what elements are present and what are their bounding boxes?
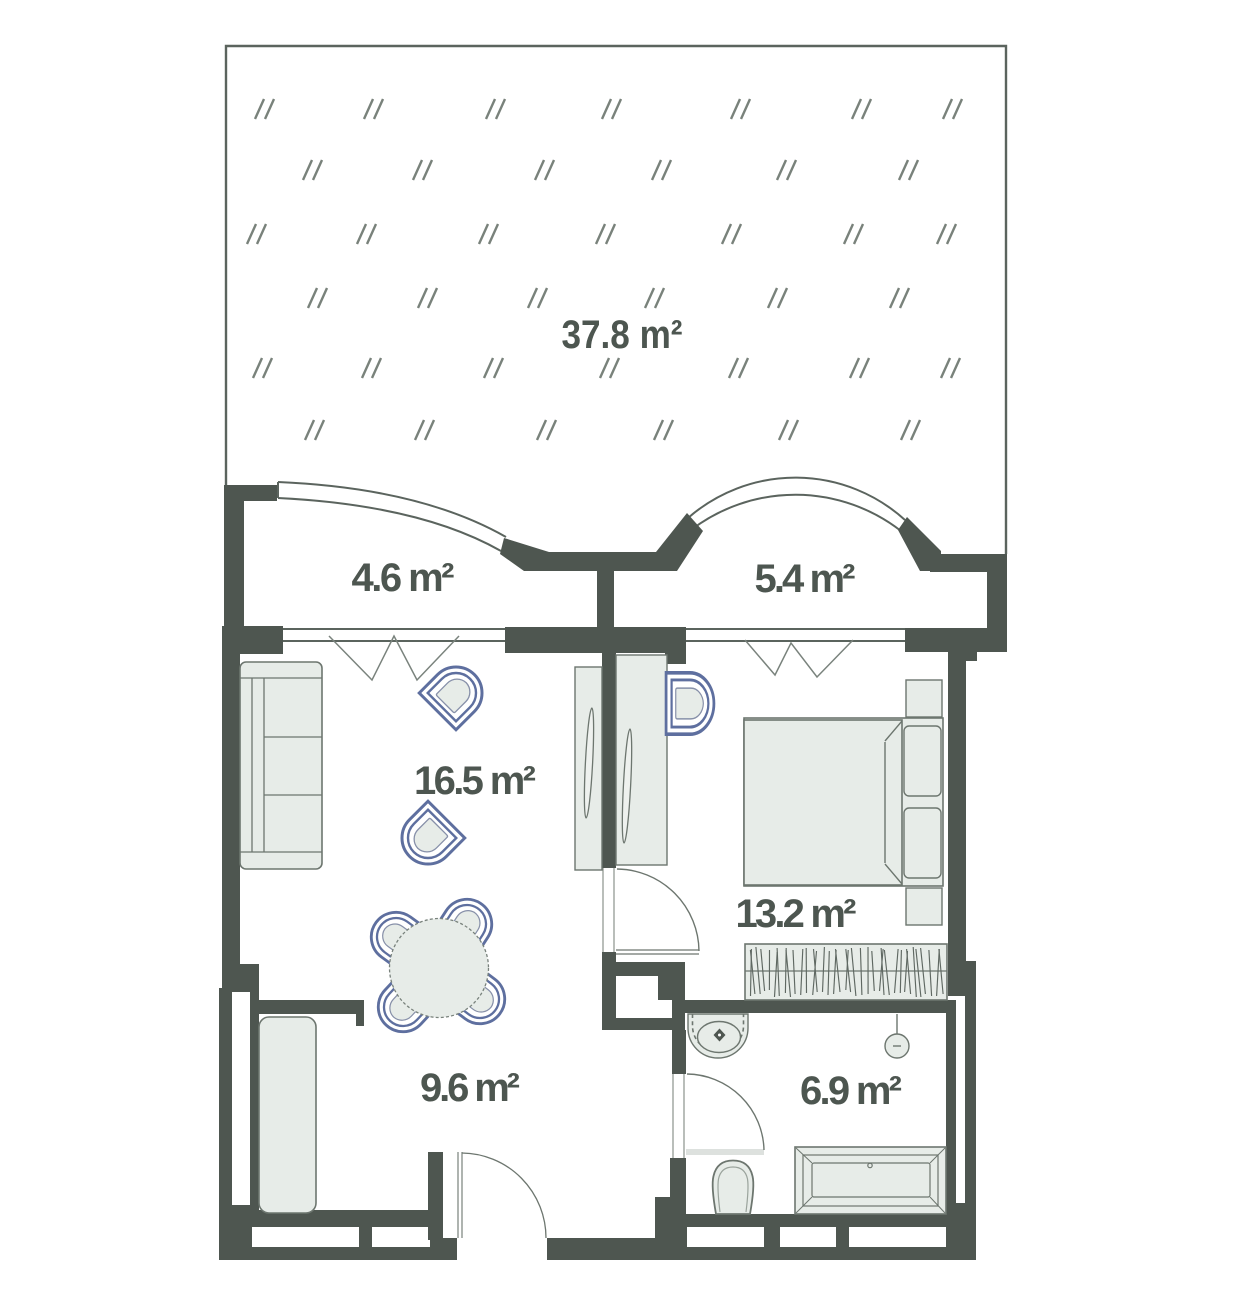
- svg-text:6.9 m²: 6.9 m²: [800, 1069, 902, 1113]
- svg-text:16.5 m²: 16.5 m²: [414, 759, 536, 803]
- svg-text:37.8 m²: 37.8 m²: [562, 313, 683, 357]
- svg-text:4.6 m²: 4.6 m²: [352, 556, 455, 600]
- svg-text:13.2 m²: 13.2 m²: [736, 892, 857, 936]
- svg-text:5.4 m²: 5.4 m²: [755, 557, 856, 601]
- svg-text:9.6 m²: 9.6 m²: [420, 1066, 520, 1110]
